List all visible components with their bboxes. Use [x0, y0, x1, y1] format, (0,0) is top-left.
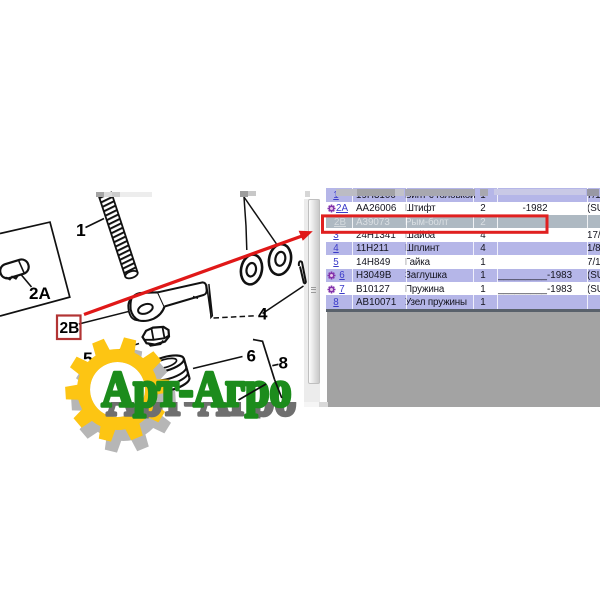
svg-text:2B: 2B — [60, 320, 80, 337]
